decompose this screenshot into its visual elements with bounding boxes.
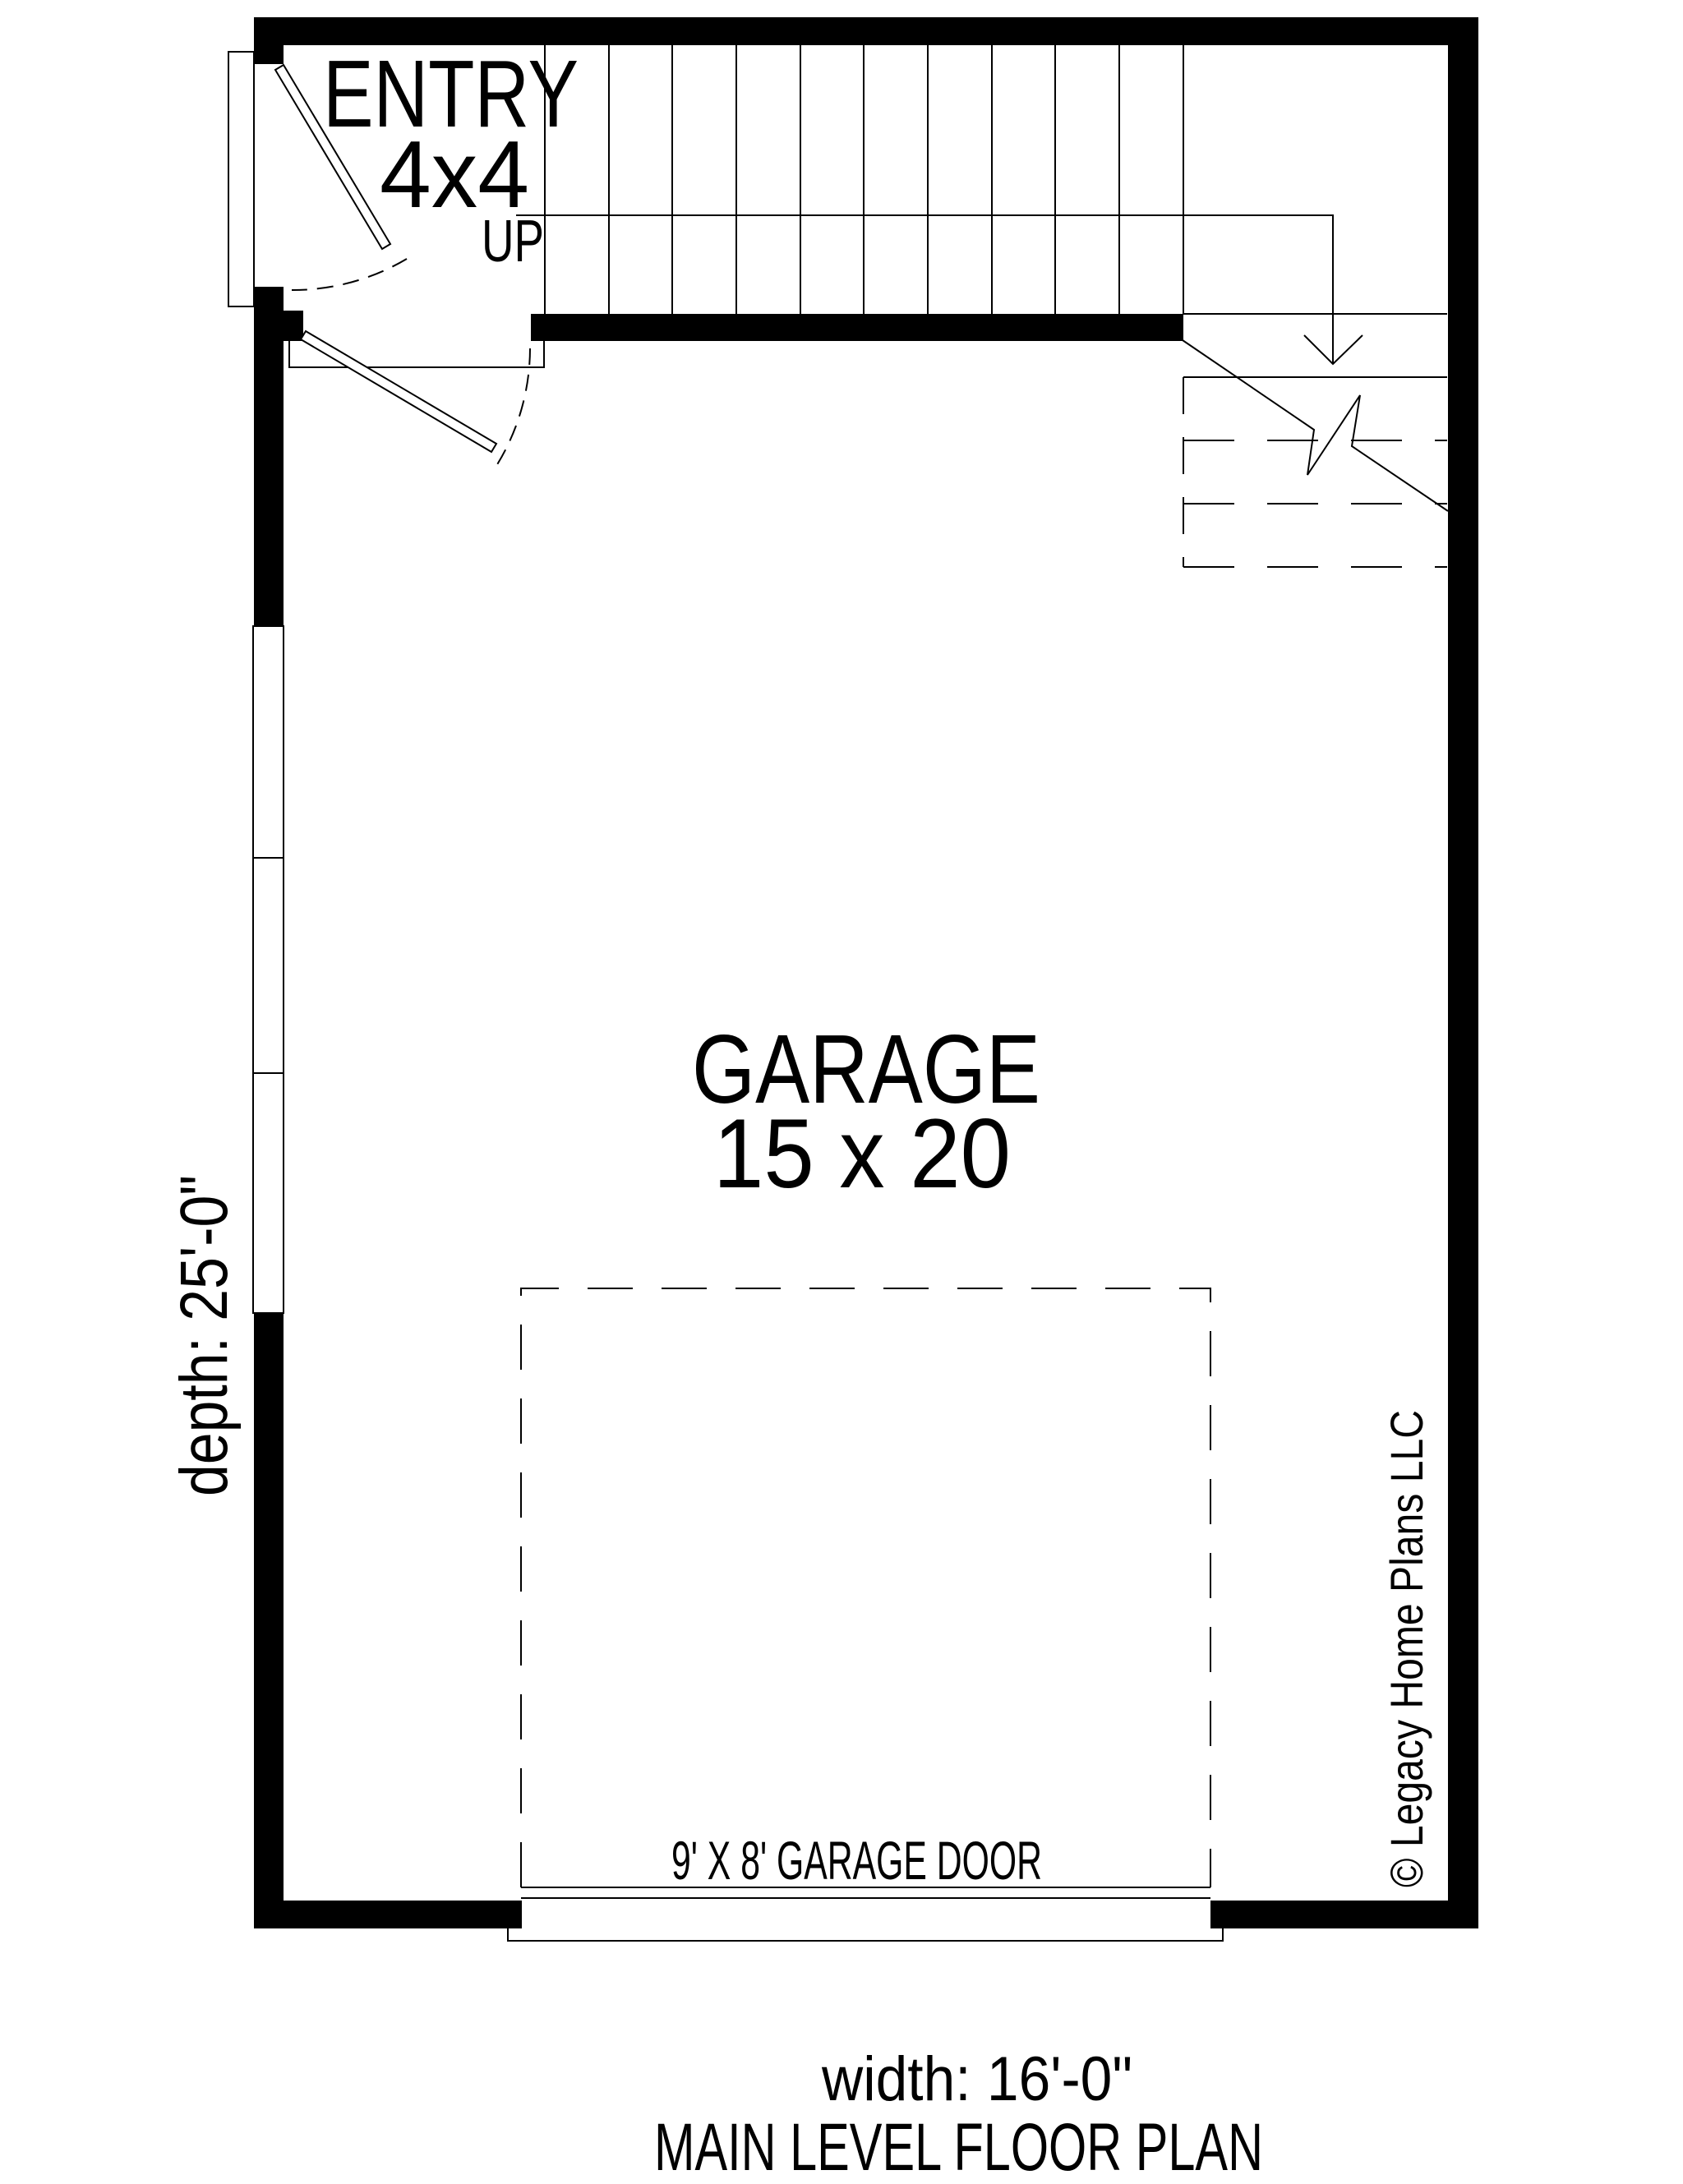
- svg-text:15 x 20: 15 x 20: [713, 1099, 1011, 1209]
- svg-text:width: 16'-0": width: 16'-0": [821, 2044, 1132, 2114]
- svg-text:© Legacy Home Plans LLC: © Legacy Home Plans LLC: [1381, 1410, 1432, 1887]
- svg-text:UP: UP: [482, 209, 544, 274]
- svg-text:depth: 25'-0": depth: 25'-0": [167, 1175, 242, 1496]
- svg-text:9' X 8' GARAGE DOOR: 9' X 8' GARAGE DOOR: [671, 1830, 1042, 1891]
- svg-text:MAIN LEVEL FLOOR PLAN: MAIN LEVEL FLOOR PLAN: [654, 2110, 1263, 2180]
